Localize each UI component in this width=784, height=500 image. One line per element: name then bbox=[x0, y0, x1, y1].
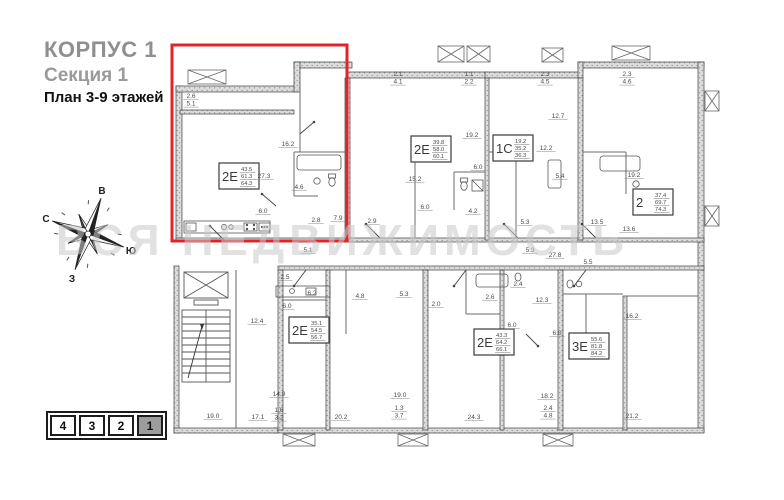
room-area-label: 5.3 bbox=[517, 219, 532, 226]
page: КОРПУС 1 Секция 1 План 3-9 этажей bbox=[0, 0, 784, 500]
svg-text:2.3: 2.3 bbox=[540, 71, 549, 78]
room-area-label: 5.5 bbox=[580, 259, 595, 266]
room-area-label: 19.2 bbox=[624, 172, 643, 179]
svg-text:5.3: 5.3 bbox=[399, 291, 408, 298]
room-area-label: 19.0 bbox=[390, 392, 409, 399]
plan-title: План 3-9 этажей bbox=[44, 89, 164, 108]
bathtub-icon bbox=[297, 155, 341, 186]
svg-text:4.6: 4.6 bbox=[622, 79, 631, 86]
room-area-label: 2.65.1 bbox=[183, 93, 198, 108]
floor-plan: 2Е43.561.364.32Е39.858.060.11С19.235.236… bbox=[166, 34, 736, 448]
svg-text:2.3: 2.3 bbox=[622, 71, 631, 78]
svg-text:5.3: 5.3 bbox=[520, 219, 529, 226]
room-area-label: 2.44.8 bbox=[540, 405, 555, 420]
svg-text:2.6: 2.6 bbox=[485, 294, 494, 301]
room-area-label: 19.0 bbox=[203, 413, 222, 420]
room-area-label: 13.6 bbox=[619, 226, 638, 233]
stairs-icon bbox=[182, 310, 230, 382]
compass-label-east: В bbox=[98, 186, 105, 197]
svg-text:2.5: 2.5 bbox=[280, 274, 289, 281]
section-selector: 4321 bbox=[46, 411, 167, 440]
svg-text:13.6: 13.6 bbox=[623, 226, 636, 233]
svg-text:6.0: 6.0 bbox=[507, 322, 516, 329]
apartment-label-a6[interactable]: 2Е43.364.266.1 bbox=[474, 329, 514, 355]
svg-text:2.8: 2.8 bbox=[311, 217, 320, 224]
svg-text:18.2: 18.2 bbox=[541, 393, 554, 400]
compass-label-north: С bbox=[42, 214, 49, 225]
svg-text:19.0: 19.0 bbox=[394, 392, 407, 399]
svg-text:1.3: 1.3 bbox=[394, 405, 403, 412]
stair-core bbox=[182, 270, 236, 428]
room-area-label: 19.2 bbox=[462, 132, 481, 139]
svg-text:2Е: 2Е bbox=[222, 169, 238, 184]
svg-text:4.2: 4.2 bbox=[468, 208, 477, 215]
bathroom-a2-icon bbox=[461, 178, 484, 191]
svg-text:3Е: 3Е bbox=[572, 339, 588, 354]
svg-text:19.2: 19.2 bbox=[628, 172, 641, 179]
room-area-label: 6.0 bbox=[470, 164, 485, 171]
walls bbox=[174, 62, 704, 433]
svg-text:27.3: 27.3 bbox=[258, 173, 271, 180]
svg-text:1С: 1С bbox=[496, 141, 513, 156]
svg-text:7.9: 7.9 bbox=[333, 215, 342, 222]
room-area-label: 21.2 bbox=[622, 413, 641, 420]
svg-text:6.0: 6.0 bbox=[552, 330, 561, 337]
apartment-label-a7[interactable]: 3Е55.681.884.2 bbox=[569, 333, 609, 359]
svg-text:16.2: 16.2 bbox=[282, 141, 295, 148]
room-area-label: 27.8 bbox=[545, 252, 564, 259]
room-area-label: 6.0 bbox=[504, 322, 519, 329]
svg-text:3.2: 3.2 bbox=[274, 415, 283, 422]
room-area-label: 4.8 bbox=[352, 293, 367, 300]
balconies bbox=[188, 46, 719, 446]
compass-label-west: З bbox=[69, 274, 75, 285]
room-area-label: 16.2 bbox=[278, 141, 297, 148]
svg-text:2.1: 2.1 bbox=[393, 71, 402, 78]
svg-text:2.2: 2.2 bbox=[464, 79, 473, 86]
room-area-label: 4.6 bbox=[291, 184, 306, 191]
room-area-label: 27.3 bbox=[254, 173, 273, 180]
compass-rose: В С Ю З bbox=[38, 182, 138, 286]
room-area-label: 2.5 bbox=[277, 274, 292, 281]
room-area-label: 6.2 bbox=[304, 290, 319, 297]
room-area-label: 15.2 bbox=[405, 176, 424, 183]
svg-text:4.6: 4.6 bbox=[294, 184, 303, 191]
svg-text:5.3: 5.3 bbox=[525, 247, 534, 254]
room-area-label: 5.3 bbox=[396, 291, 411, 298]
room-area-label: 5.1 bbox=[300, 247, 315, 254]
section-title: Секция 1 bbox=[44, 64, 164, 88]
svg-text:2.6: 2.6 bbox=[186, 93, 195, 100]
svg-text:5.4: 5.4 bbox=[555, 173, 564, 180]
svg-text:19.2: 19.2 bbox=[466, 132, 479, 139]
svg-text:19.0: 19.0 bbox=[207, 413, 220, 420]
svg-text:2Е: 2Е bbox=[414, 142, 430, 157]
svg-text:2.4: 2.4 bbox=[543, 405, 552, 412]
section-tab-2[interactable]: 2 bbox=[108, 415, 134, 436]
elevator-icon bbox=[184, 272, 228, 305]
section-tab-3[interactable]: 3 bbox=[79, 415, 105, 436]
svg-text:2.9: 2.9 bbox=[367, 218, 376, 225]
room-area-label: 1.63.2 bbox=[271, 407, 286, 422]
apartment-label-a5[interactable]: 2Е35.154.556.7 bbox=[289, 317, 329, 343]
room-area-label: 2.9 bbox=[364, 218, 379, 225]
svg-text:5.1: 5.1 bbox=[303, 247, 312, 254]
svg-text:12.4: 12.4 bbox=[251, 318, 264, 325]
building-title: КОРПУС 1 bbox=[44, 36, 164, 64]
room-area-label: 12.2 bbox=[536, 145, 555, 152]
svg-text:12.3: 12.3 bbox=[536, 297, 549, 304]
svg-text:2.4: 2.4 bbox=[513, 281, 522, 288]
svg-text:5.1: 5.1 bbox=[186, 101, 195, 108]
apartment-label-a1[interactable]: 2Е43.561.364.3 bbox=[219, 163, 259, 189]
svg-text:1.6: 1.6 bbox=[274, 407, 283, 414]
room-area-label: 12.7 bbox=[548, 113, 567, 120]
apartment-label-a4[interactable]: 237.469.774.3 bbox=[633, 189, 673, 215]
room-area-label: 7.9 bbox=[330, 215, 345, 222]
room-area-label: 2.0 bbox=[428, 301, 443, 308]
title-block: КОРПУС 1 Секция 1 План 3-9 этажей bbox=[44, 36, 164, 108]
room-area-label: 1.33.7 bbox=[391, 405, 406, 420]
section-tab-1[interactable]: 1 bbox=[137, 415, 163, 436]
room-area-label: 20.2 bbox=[331, 414, 350, 421]
svg-text:6.0: 6.0 bbox=[258, 208, 267, 215]
room-area-label: 2.34.6 bbox=[619, 71, 634, 86]
svg-text:4.8: 4.8 bbox=[543, 413, 552, 420]
svg-text:20.2: 20.2 bbox=[335, 414, 348, 421]
svg-text:15.2: 15.2 bbox=[409, 176, 422, 183]
room-area-label: 2.4 bbox=[510, 281, 525, 288]
svg-text:24.3: 24.3 bbox=[468, 414, 481, 421]
room-area-label: 2.6 bbox=[482, 294, 497, 301]
doors bbox=[209, 121, 596, 348]
svg-text:16.2: 16.2 bbox=[626, 313, 639, 320]
room-area-label: 4.2 bbox=[465, 208, 480, 215]
svg-text:14.9: 14.9 bbox=[273, 391, 286, 398]
room-area-label: 12.3 bbox=[532, 297, 551, 304]
svg-text:2.0: 2.0 bbox=[431, 301, 440, 308]
room-area-label: 16.2 bbox=[622, 313, 641, 320]
compass-label-south: Ю bbox=[126, 246, 136, 257]
kitchen-a5-icon bbox=[276, 286, 330, 297]
svg-text:5.5: 5.5 bbox=[583, 259, 592, 266]
room-area-label: 6.0 bbox=[417, 204, 432, 211]
svg-text:6.0: 6.0 bbox=[420, 204, 429, 211]
svg-text:27.8: 27.8 bbox=[549, 252, 562, 259]
room-area-label: 6.0 bbox=[255, 208, 270, 215]
room-area-label: 18.2 bbox=[537, 393, 556, 400]
svg-text:13.5: 13.5 bbox=[591, 219, 604, 226]
svg-text:4.5: 4.5 bbox=[540, 79, 549, 86]
room-area-label: 5.3 bbox=[522, 247, 537, 254]
apartment-label-a2[interactable]: 2Е39.858.060.1 bbox=[411, 136, 451, 162]
svg-text:17.1: 17.1 bbox=[252, 414, 265, 421]
room-area-label: 12.4 bbox=[247, 318, 266, 325]
svg-text:6.0: 6.0 bbox=[473, 164, 482, 171]
svg-text:3.7: 3.7 bbox=[394, 413, 403, 420]
kitchen-counter-icon bbox=[184, 221, 270, 233]
svg-text:4.8: 4.8 bbox=[355, 293, 364, 300]
svg-text:4.1: 4.1 bbox=[393, 79, 402, 86]
svg-text:21.2: 21.2 bbox=[626, 413, 639, 420]
svg-text:6.0: 6.0 bbox=[282, 303, 291, 310]
room-area-label: 17.1 bbox=[248, 414, 267, 421]
room-area-label: 13.5 bbox=[587, 219, 606, 226]
room-area-label: 24.3 bbox=[464, 414, 483, 421]
svg-text:6.2: 6.2 bbox=[307, 290, 316, 297]
svg-text:1.1: 1.1 bbox=[464, 71, 473, 78]
svg-text:12.7: 12.7 bbox=[552, 113, 565, 120]
room-area-label: 2.8 bbox=[308, 217, 323, 224]
room-area-label: 5.4 bbox=[552, 173, 567, 180]
svg-text:12.2: 12.2 bbox=[540, 145, 553, 152]
svg-text:2Е: 2Е bbox=[477, 335, 493, 350]
room-area-label: 6.0 bbox=[279, 303, 294, 310]
section-tab-4[interactable]: 4 bbox=[50, 415, 76, 436]
svg-text:2Е: 2Е bbox=[292, 323, 308, 338]
svg-text:2: 2 bbox=[636, 195, 643, 210]
room-area-label: 14.9 bbox=[269, 391, 288, 398]
apartment-label-a3[interactable]: 1С19.235.236.3 bbox=[493, 135, 533, 161]
